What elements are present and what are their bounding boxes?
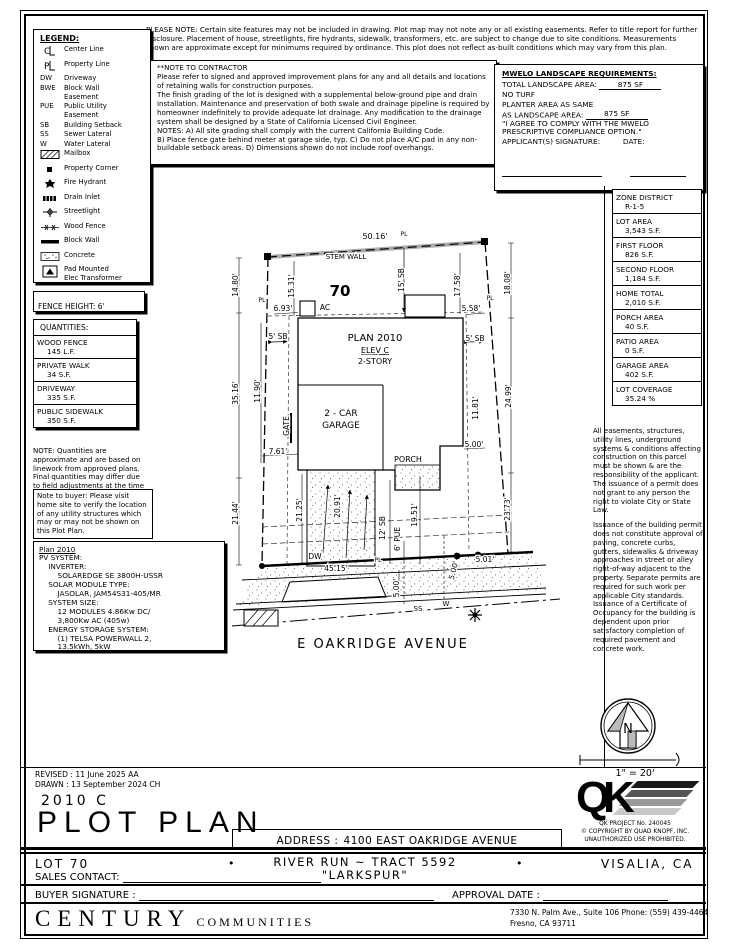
plot-drawing: 50.16'PLSTEM WALL7014.80'15.31'15' SB17.… — [228, 228, 612, 690]
plot-label: 70 — [330, 282, 351, 300]
zone-row-value: 2,010 S.F. — [616, 298, 698, 307]
wood-fence-icon — [40, 222, 64, 236]
legend-item-label: Streetlight — [64, 207, 146, 216]
svg-text:C: C — [44, 47, 50, 56]
legend-item: Property Corner — [40, 164, 146, 178]
zone-table-row: FIRST FLOOR826 S.F. — [613, 237, 701, 261]
zone-row-value: 826 S.F. — [616, 250, 698, 259]
zone-row-value: 402 S.F. — [616, 370, 698, 379]
legend-item: SSSewer Lateral — [40, 130, 146, 139]
mwelo-title: MWELO LANDSCAPE REQUIREMENTS: — [502, 69, 696, 80]
plot-label: 21.44' — [231, 501, 240, 525]
plot-label: 19.51' — [410, 503, 419, 527]
zone-row-value: 35.24 % — [616, 394, 698, 403]
buyer-signature-label: BUYER SIGNATURE : — [35, 890, 136, 901]
legend-item-label: Sewer Lateral — [64, 130, 146, 139]
buyer-note-box: Note to buyer: Please visit home site to… — [33, 489, 153, 539]
mwelo-date-label: DATE: — [623, 137, 645, 146]
buyer-signature-row: BUYER SIGNATURE : — [35, 889, 434, 901]
zone-row-value: R-1-5 — [616, 202, 698, 211]
svg-text:P: P — [44, 62, 50, 71]
plot-label: 23.73' — [503, 497, 512, 521]
revision-block: REVISED : 11 June 2025 AA DRAWN : 13 Sep… — [35, 770, 160, 790]
plot-label: AC — [320, 303, 330, 312]
plot-label: SS — [414, 605, 423, 613]
quantity-name: WOOD FENCE — [37, 338, 133, 347]
approval-date-line[interactable] — [543, 889, 668, 901]
mailbox-icon — [244, 610, 278, 626]
plot-label: 5.58' — [462, 304, 481, 313]
contractor-note-box: **NOTE TO CONTRACTOR Please refer to sig… — [150, 60, 497, 165]
qk-project-number: QK PROJECT No. 240045 — [566, 821, 704, 829]
mwelo-signature-line[interactable] — [502, 167, 602, 177]
legend-item: Concrete — [40, 251, 146, 265]
buyer-signature-line[interactable] — [139, 889, 434, 901]
quantity-name: PUBLIC SIDEWALK — [37, 407, 133, 416]
legend-item-label: Fire Hydrant — [64, 178, 146, 187]
mailbox-icon — [40, 149, 64, 163]
legend-item-label: Block Wall — [64, 236, 146, 245]
quantity-value: 145 L.F. — [37, 347, 133, 356]
qk-text-block: QK PROJECT No. 240045 © COPYRIGHT BY QUA… — [566, 821, 704, 845]
fence-height-box: FENCE HEIGHT: 6' — [33, 291, 145, 312]
plot-label: 18.08' — [503, 271, 512, 295]
zone-row-value: 40 S.F. — [616, 322, 698, 331]
legend-item-label: Mailbox — [64, 149, 146, 158]
pv-system-box: Plan 2010 PV SYSTEM: INVERTER: SOLAREDGE… — [33, 541, 225, 651]
quantity-name: DRIVEWAY — [37, 384, 133, 393]
mwelo-agree-line2: PRESCRIPTIVE COMPLIANCE OPTION." — [502, 128, 696, 137]
zone-table-row: LOT AREA3,543 S.F. — [613, 213, 701, 237]
zone-row-value: 3,543 S.F. — [616, 226, 698, 235]
mwelo-blank-lines — [502, 158, 696, 177]
sales-contact-line[interactable] — [123, 871, 321, 883]
plot-label: 5.01' — [476, 555, 495, 564]
mwelo-total-label: TOTAL LANDSCAPE AREA: — [502, 80, 597, 89]
plot-label: 14.80' — [231, 273, 240, 297]
zone-table-row: SECOND FLOOR1,184 S.F. — [613, 261, 701, 285]
drain-inlet-icon — [40, 193, 64, 207]
quantity-value: 335 S.F. — [37, 393, 133, 402]
zone-row-label: SECOND FLOOR — [616, 265, 698, 274]
plot-label: 15.31' — [287, 274, 296, 298]
plot-label: STEM WALL — [326, 253, 367, 261]
qk-logo: Q K QK PROJECT No. 240045 © COPYRIGHT BY… — [576, 779, 704, 849]
plot-label: 7.61' — [269, 447, 288, 456]
plot-label: GATE — [282, 416, 291, 436]
ac-pad — [300, 301, 315, 316]
legend-key: W — [40, 140, 64, 149]
mwelo-signature-label: APPLICANT(S) SIGNATURE: — [502, 137, 600, 146]
plot-label: PL — [375, 557, 383, 564]
zone-table-row: LOT COVERAGE35.24 % — [613, 381, 701, 405]
legend-item: Streetlight — [40, 207, 146, 221]
office-line-1: 7330 N. Palm Ave., Suite 106 Phone: (559… — [510, 908, 708, 919]
plot-label: 2-STORY — [358, 357, 392, 366]
pv-body: PV SYSTEM: INVERTER: SOLAREDGE SE 3800H-… — [39, 554, 219, 651]
propertyline-icon: P — [40, 60, 64, 74]
legend-key: BWE — [40, 84, 64, 93]
plot-label: 5.00' — [465, 440, 484, 449]
plot-label: W — [443, 600, 450, 608]
zone-table: ZONE DISTRICTR-1-5LOT AREA3,543 S.F.FIRS… — [612, 189, 702, 406]
legend-title: LEGEND: — [40, 34, 146, 43]
qk-unauthorized: UNAUTHORIZED USE PROHIBITED. — [566, 837, 704, 845]
zone-row-label: ZONE DISTRICT — [616, 193, 698, 202]
qk-letter-k: K — [603, 773, 635, 823]
footer-rule-1 — [21, 884, 706, 886]
legend-item-label: Wood Fence — [64, 222, 146, 231]
transformer-icon — [40, 265, 64, 281]
legend-item: Mailbox — [40, 149, 146, 163]
qk-stripe — [631, 781, 700, 788]
plot-label: 6.93' — [274, 304, 293, 313]
contractor-note-body: Please refer to signed and approved impr… — [157, 73, 490, 153]
plot-label: 11.81' — [471, 396, 480, 420]
legend-item: Drain Inlet — [40, 193, 146, 207]
quantities-box: QUANTITIES: WOOD FENCE145 L.F.PRIVATE WA… — [33, 319, 137, 428]
plot-label: 11.90' — [253, 379, 262, 403]
plot-label: PLAN 2010 — [348, 333, 403, 344]
plot-label: PL — [487, 295, 495, 302]
plot-plan-sheet: PLEASE NOTE: Certain site features may n… — [0, 0, 729, 945]
plot-label: 5' SB — [268, 332, 287, 341]
zone-row-label: LOT COVERAGE — [616, 385, 698, 394]
legend-item: PUEPublic Utility Easement — [40, 102, 146, 120]
office-line-2: Fresno, CA 93711 — [510, 919, 708, 930]
legend-item-label: Block Wall Easement — [64, 84, 146, 102]
compass-n: N — [623, 722, 633, 737]
zone-table-row: PATIO AREA0 S.F. — [613, 333, 701, 357]
legend-item: WWater Lateral — [40, 140, 146, 149]
sales-contact-row: SALES CONTACT: — [35, 871, 321, 883]
quantity-row: PUBLIC SIDEWALK350 S.F. — [34, 404, 136, 427]
plot-label: 12' SB — [378, 516, 387, 540]
property-corner-icon — [454, 553, 461, 560]
property-corner-icon — [259, 563, 265, 569]
sb-dim-left — [272, 342, 287, 343]
double-rule-top — [21, 847, 706, 850]
sidewalk-band — [236, 553, 546, 606]
mwelo-planter-line1: PLANTER AREA AS SAME — [502, 101, 696, 110]
plot-label: 35.16' — [231, 381, 240, 405]
legend-key: SS — [40, 130, 64, 139]
approval-date-row: APPROVAL DATE : — [452, 889, 668, 901]
plot-label: 5' SB — [465, 334, 484, 343]
plot-label: 24.99' — [504, 384, 513, 408]
quantity-row: DRIVEWAY335 S.F. — [34, 381, 136, 404]
legend-item: Wood Fence — [40, 222, 146, 236]
zone-row-label: PATIO AREA — [616, 337, 698, 346]
zone-table-row: HOME TOTAL2,010 S.F. — [613, 285, 701, 309]
block-wall-icon — [40, 236, 64, 250]
mwelo-box: MWELO LANDSCAPE REQUIREMENTS: TOTAL LAND… — [494, 64, 704, 191]
tract-name: RIVER RUN ~ TRACT 5592 — [250, 855, 480, 869]
fire-hydrant-icon — [40, 178, 64, 192]
quantities-title: QUANTITIES: — [34, 320, 136, 335]
zone-row-label: LOT AREA — [616, 217, 698, 226]
zone-row-label: FIRST FLOOR — [616, 241, 698, 250]
brand-sub: COMMUNITIES — [196, 915, 314, 929]
sheet-title: PLOT PLAN — [37, 806, 265, 840]
address-label: ADDRESS : — [276, 835, 338, 847]
zone-row-label: HOME TOTAL — [616, 289, 698, 298]
legend-item-label: Concrete — [64, 251, 146, 260]
city-label: VISALIA, CA — [601, 857, 693, 871]
plot-label: 17.58' — [453, 273, 462, 297]
fire-hydrant-icon — [468, 608, 482, 622]
legend-item: Pad Mounted Elec Transformer (Above Grou… — [40, 265, 146, 283]
plot-label: PL — [259, 297, 267, 304]
bullet-1: • — [228, 857, 235, 870]
fence-height-label: FENCE HEIGHT: 6' — [38, 302, 105, 311]
legend-item-label: Drain Inlet — [64, 193, 146, 202]
zone-table-row: PORCH AREA40 S.F. — [613, 309, 701, 333]
legend-item-label: Property Line — [64, 60, 146, 69]
legend-item: CCenter Line — [40, 45, 146, 59]
legend-key: SB — [40, 121, 64, 130]
approval-date-label: APPROVAL DATE : — [452, 890, 540, 901]
plot-label: 2 - CAR — [324, 409, 357, 419]
mwelo-total-value: 875 SF — [599, 80, 661, 90]
legend-item-label: Property Corner — [64, 164, 146, 173]
plot-label: E OAKRIDGE AVENUE — [297, 637, 469, 652]
legend-item-label: Center Line — [64, 45, 146, 54]
house-bump — [405, 295, 445, 317]
footer-rule-2 — [21, 902, 706, 904]
buyer-note: Note to buyer: Please visit home site to… — [37, 492, 149, 536]
sales-contact-label: SALES CONTACT: — [35, 872, 119, 883]
plot-label: 15' SB — [397, 268, 406, 292]
legend-item: SBBuilding Setback — [40, 121, 146, 130]
plot-label: 6' PUE — [393, 527, 402, 551]
brand-main: CENTURY — [35, 906, 191, 931]
legend-box: LEGEND: CCenter LinePProperty LineDWDriv… — [33, 29, 151, 283]
mwelo-signature-row: APPLICANT(S) SIGNATURE: DATE: — [502, 137, 696, 148]
legend-list: CCenter LinePProperty LineDWDrivewayBWEB… — [40, 45, 146, 283]
legend-item: DWDriveway — [40, 74, 146, 83]
quantity-row: PRIVATE WALK34 S.F. — [34, 358, 136, 381]
double-rule-bottom — [21, 852, 706, 854]
property-corner-icon — [264, 253, 271, 260]
mwelo-total-row: TOTAL LANDSCAPE AREA: 875 SF — [502, 80, 696, 91]
mwelo-date-line[interactable] — [630, 167, 686, 177]
quantity-value: 34 S.F. — [37, 370, 133, 379]
legend-key: DW — [40, 74, 64, 83]
zone-row-label: GARAGE AREA — [616, 361, 698, 370]
concrete-icon — [40, 251, 64, 265]
builder-office-address: 7330 N. Palm Ave., Suite 106 Phone: (559… — [510, 908, 708, 929]
plot-label: PL — [401, 231, 409, 238]
legend-item: Block Wall — [40, 236, 146, 250]
lot-number-label: LOT 70 — [35, 857, 89, 871]
plot-label: 50.16' — [362, 232, 387, 241]
zone-table-row: GARAGE AREA402 S.F. — [613, 357, 701, 381]
plot-label: DW — [308, 552, 322, 561]
quantity-value: 350 S.F. — [37, 416, 133, 425]
builder-logo: CENTURY COMMUNITIES — [35, 906, 314, 932]
legend-item: Fire Hydrant — [40, 178, 146, 192]
legend-item: PProperty Line — [40, 60, 146, 74]
bullet-2: • — [516, 857, 523, 870]
side-setback-left — [287, 316, 289, 564]
zone-row-value: 0 S.F. — [616, 346, 698, 355]
quantity-row: WOOD FENCE145 L.F. — [34, 335, 136, 358]
plot-label: 5.00' — [392, 579, 401, 598]
address-box: ADDRESS : 4100 EAST OAKRIDGE AVENUE — [232, 829, 562, 849]
plot-label: ELEV C — [361, 346, 390, 355]
please-note: PLEASE NOTE: Certain site features may n… — [146, 25, 698, 52]
property-corner-icon — [40, 164, 64, 178]
address-value: 4100 EAST OAKRIDGE AVENUE — [344, 835, 518, 847]
legend-item-label: Driveway — [64, 74, 146, 83]
legend-item: BWEBlock Wall Easement — [40, 84, 146, 102]
centerline-icon: C — [40, 45, 64, 59]
legend-item-label: Building Setback — [64, 121, 146, 130]
legend-item-label: Public Utility Easement — [64, 102, 146, 120]
zone-row-value: 1,184 S.F. — [616, 274, 698, 283]
revised-line: REVISED : 11 June 2025 AA — [35, 770, 160, 780]
side-setback-right — [466, 314, 469, 552]
plot-label: PORCH — [394, 455, 422, 464]
qk-copyright: © COPYRIGHT BY QUAD KNOPF, INC. — [566, 829, 704, 837]
plot-label: 20.91' — [333, 494, 342, 518]
quantity-name: PRIVATE WALK — [37, 361, 133, 370]
mwelo-planter-label: AS LANDSCAPE AREA: — [502, 110, 583, 119]
scale-bar — [578, 752, 688, 766]
porch — [395, 465, 440, 490]
legend-item-label: Water Lateral — [64, 140, 146, 149]
streetlight-icon — [40, 207, 64, 221]
zone-row-label: PORCH AREA — [616, 313, 698, 322]
drawn-line: DRAWN : 13 September 2024 CH — [35, 780, 160, 790]
legend-key: PUE — [40, 102, 64, 111]
plot-label: 21.25' — [295, 498, 304, 522]
plot-label: 45.15' — [324, 564, 348, 573]
property-corner-icon — [481, 238, 488, 245]
plot-label: GARAGE — [322, 421, 360, 431]
legend-item-label: Pad Mounted Elec Transformer (Above Grou… — [64, 265, 146, 283]
zone-table-row: ZONE DISTRICTR-1-5 — [613, 190, 701, 213]
